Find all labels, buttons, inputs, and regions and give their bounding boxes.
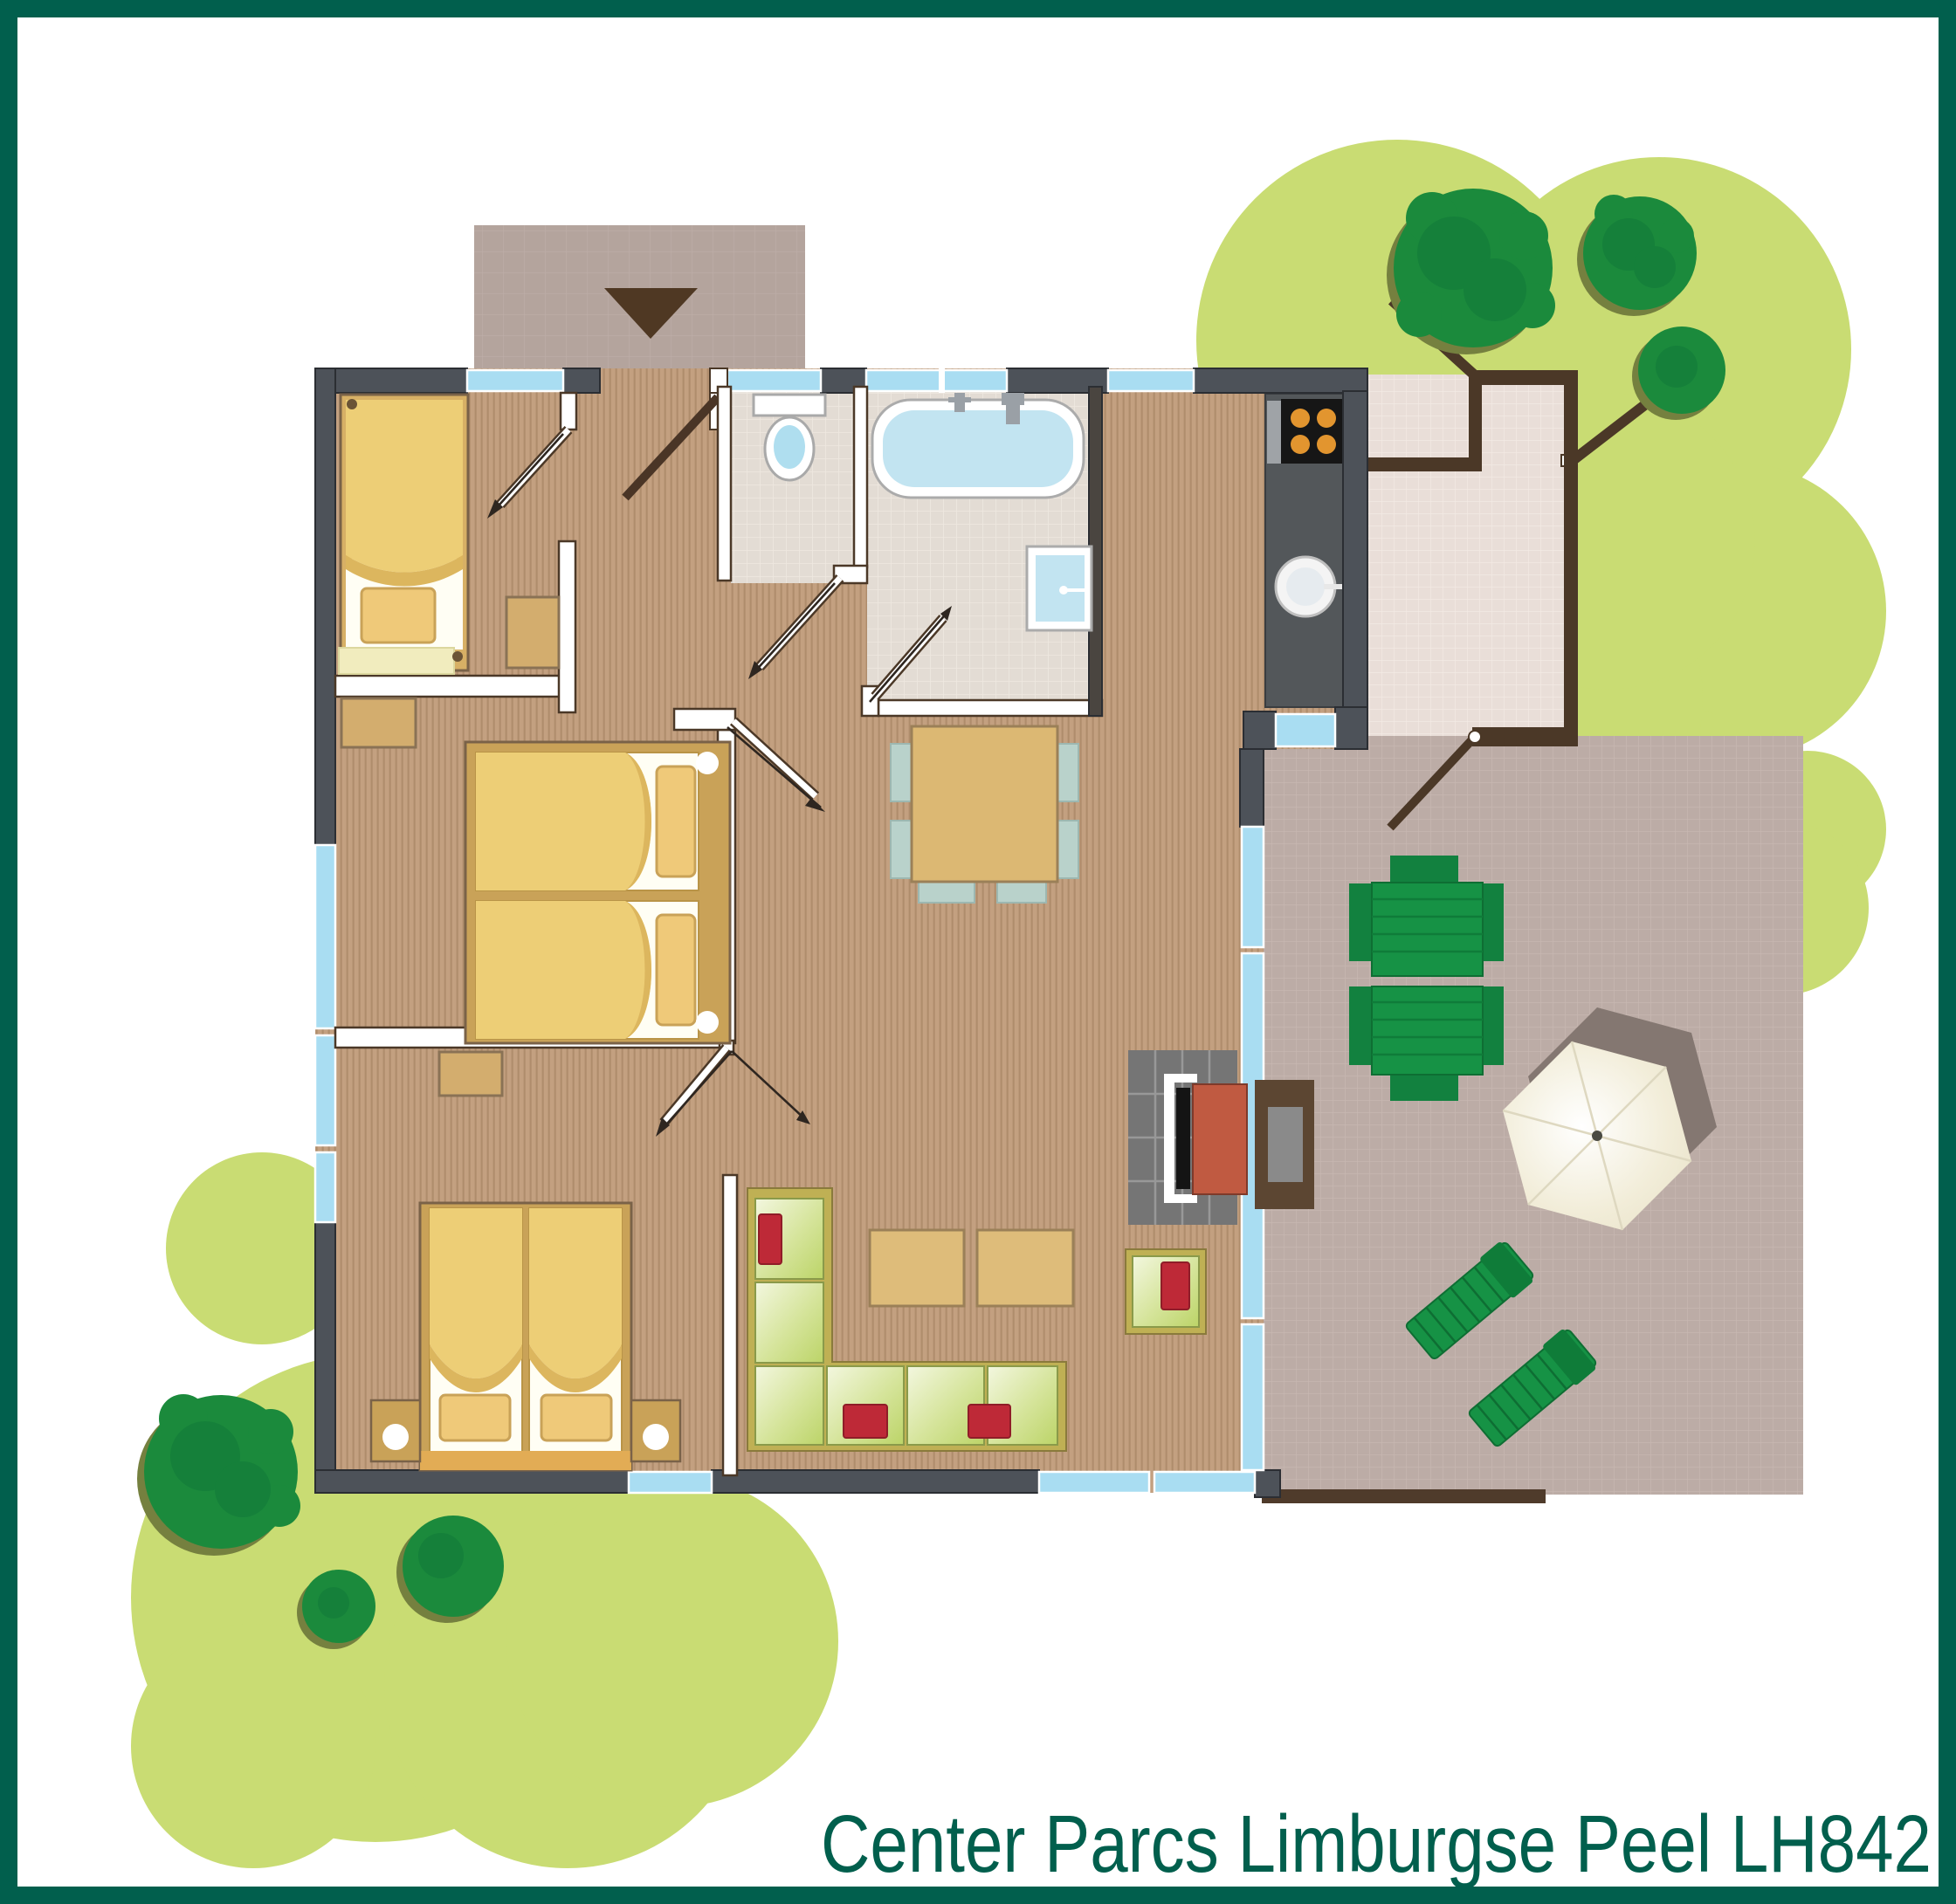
- svg-text:Center Parcs Limburgse Peel LH: Center Parcs Limburgse Peel LH842: [821, 1798, 1932, 1889]
